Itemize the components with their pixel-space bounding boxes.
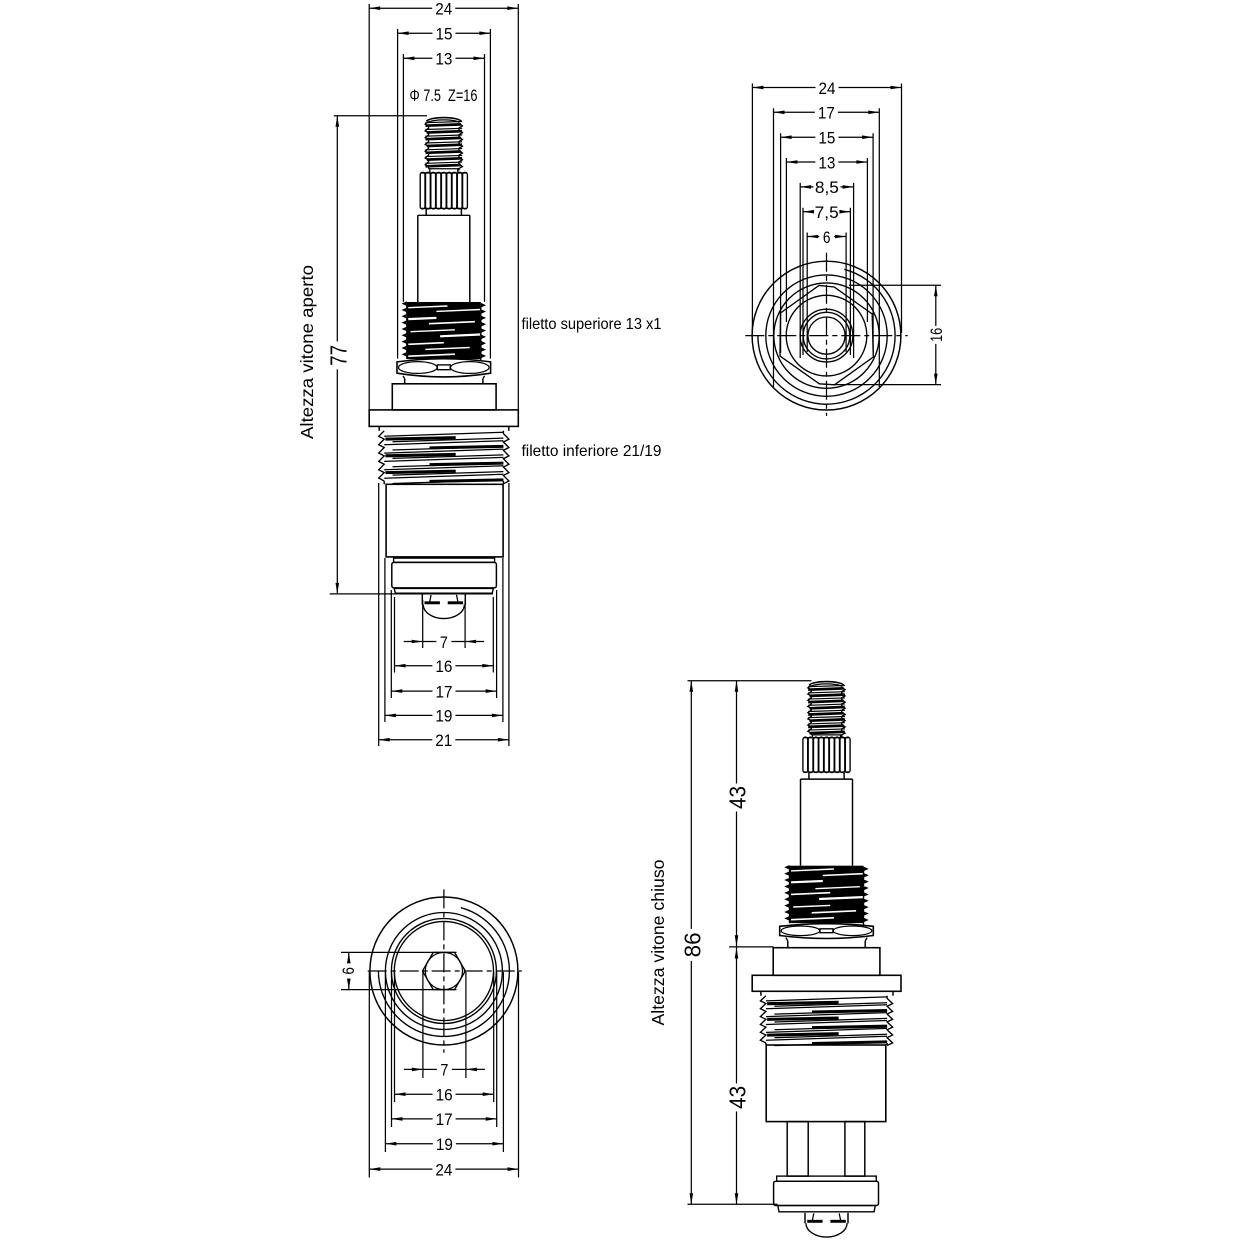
svg-text:7,5: 7,5 <box>815 203 839 222</box>
svg-text:13: 13 <box>818 153 835 172</box>
svg-text:Altezza vitone aperto: Altezza vitone aperto <box>297 265 317 439</box>
svg-text:16: 16 <box>435 657 452 676</box>
svg-text:16: 16 <box>436 1086 453 1105</box>
svg-text:15: 15 <box>436 25 453 44</box>
svg-text:24: 24 <box>819 79 836 98</box>
svg-text:19: 19 <box>436 1135 453 1154</box>
svg-text:17: 17 <box>436 1110 453 1129</box>
svg-text:7: 7 <box>440 633 448 652</box>
svg-text:24: 24 <box>435 0 452 19</box>
svg-text:43: 43 <box>725 786 751 809</box>
svg-text:6: 6 <box>823 228 831 247</box>
svg-text:19: 19 <box>435 707 452 726</box>
svg-text:Altezza vitone chiuso: Altezza vitone chiuso <box>648 860 668 1026</box>
svg-text:15: 15 <box>818 129 835 148</box>
svg-text:6: 6 <box>339 967 358 975</box>
svg-text:filetto inferiore 21/19: filetto inferiore 21/19 <box>522 443 662 460</box>
svg-text:17: 17 <box>436 682 453 701</box>
svg-text:17: 17 <box>818 104 835 123</box>
svg-text:8,5: 8,5 <box>815 178 839 197</box>
svg-text:13: 13 <box>435 50 452 69</box>
svg-text:86: 86 <box>680 932 706 957</box>
svg-text:filetto superiore 13 x1: filetto superiore 13 x1 <box>522 316 662 333</box>
svg-text:21: 21 <box>435 731 452 750</box>
svg-text:43: 43 <box>725 1086 751 1109</box>
svg-text:7: 7 <box>440 1061 448 1080</box>
svg-text:24: 24 <box>435 1160 452 1179</box>
svg-text:77: 77 <box>326 345 352 366</box>
svg-text:Φ 7.5 Z=16: Φ 7.5 Z=16 <box>410 86 478 105</box>
svg-text:16: 16 <box>927 328 946 342</box>
